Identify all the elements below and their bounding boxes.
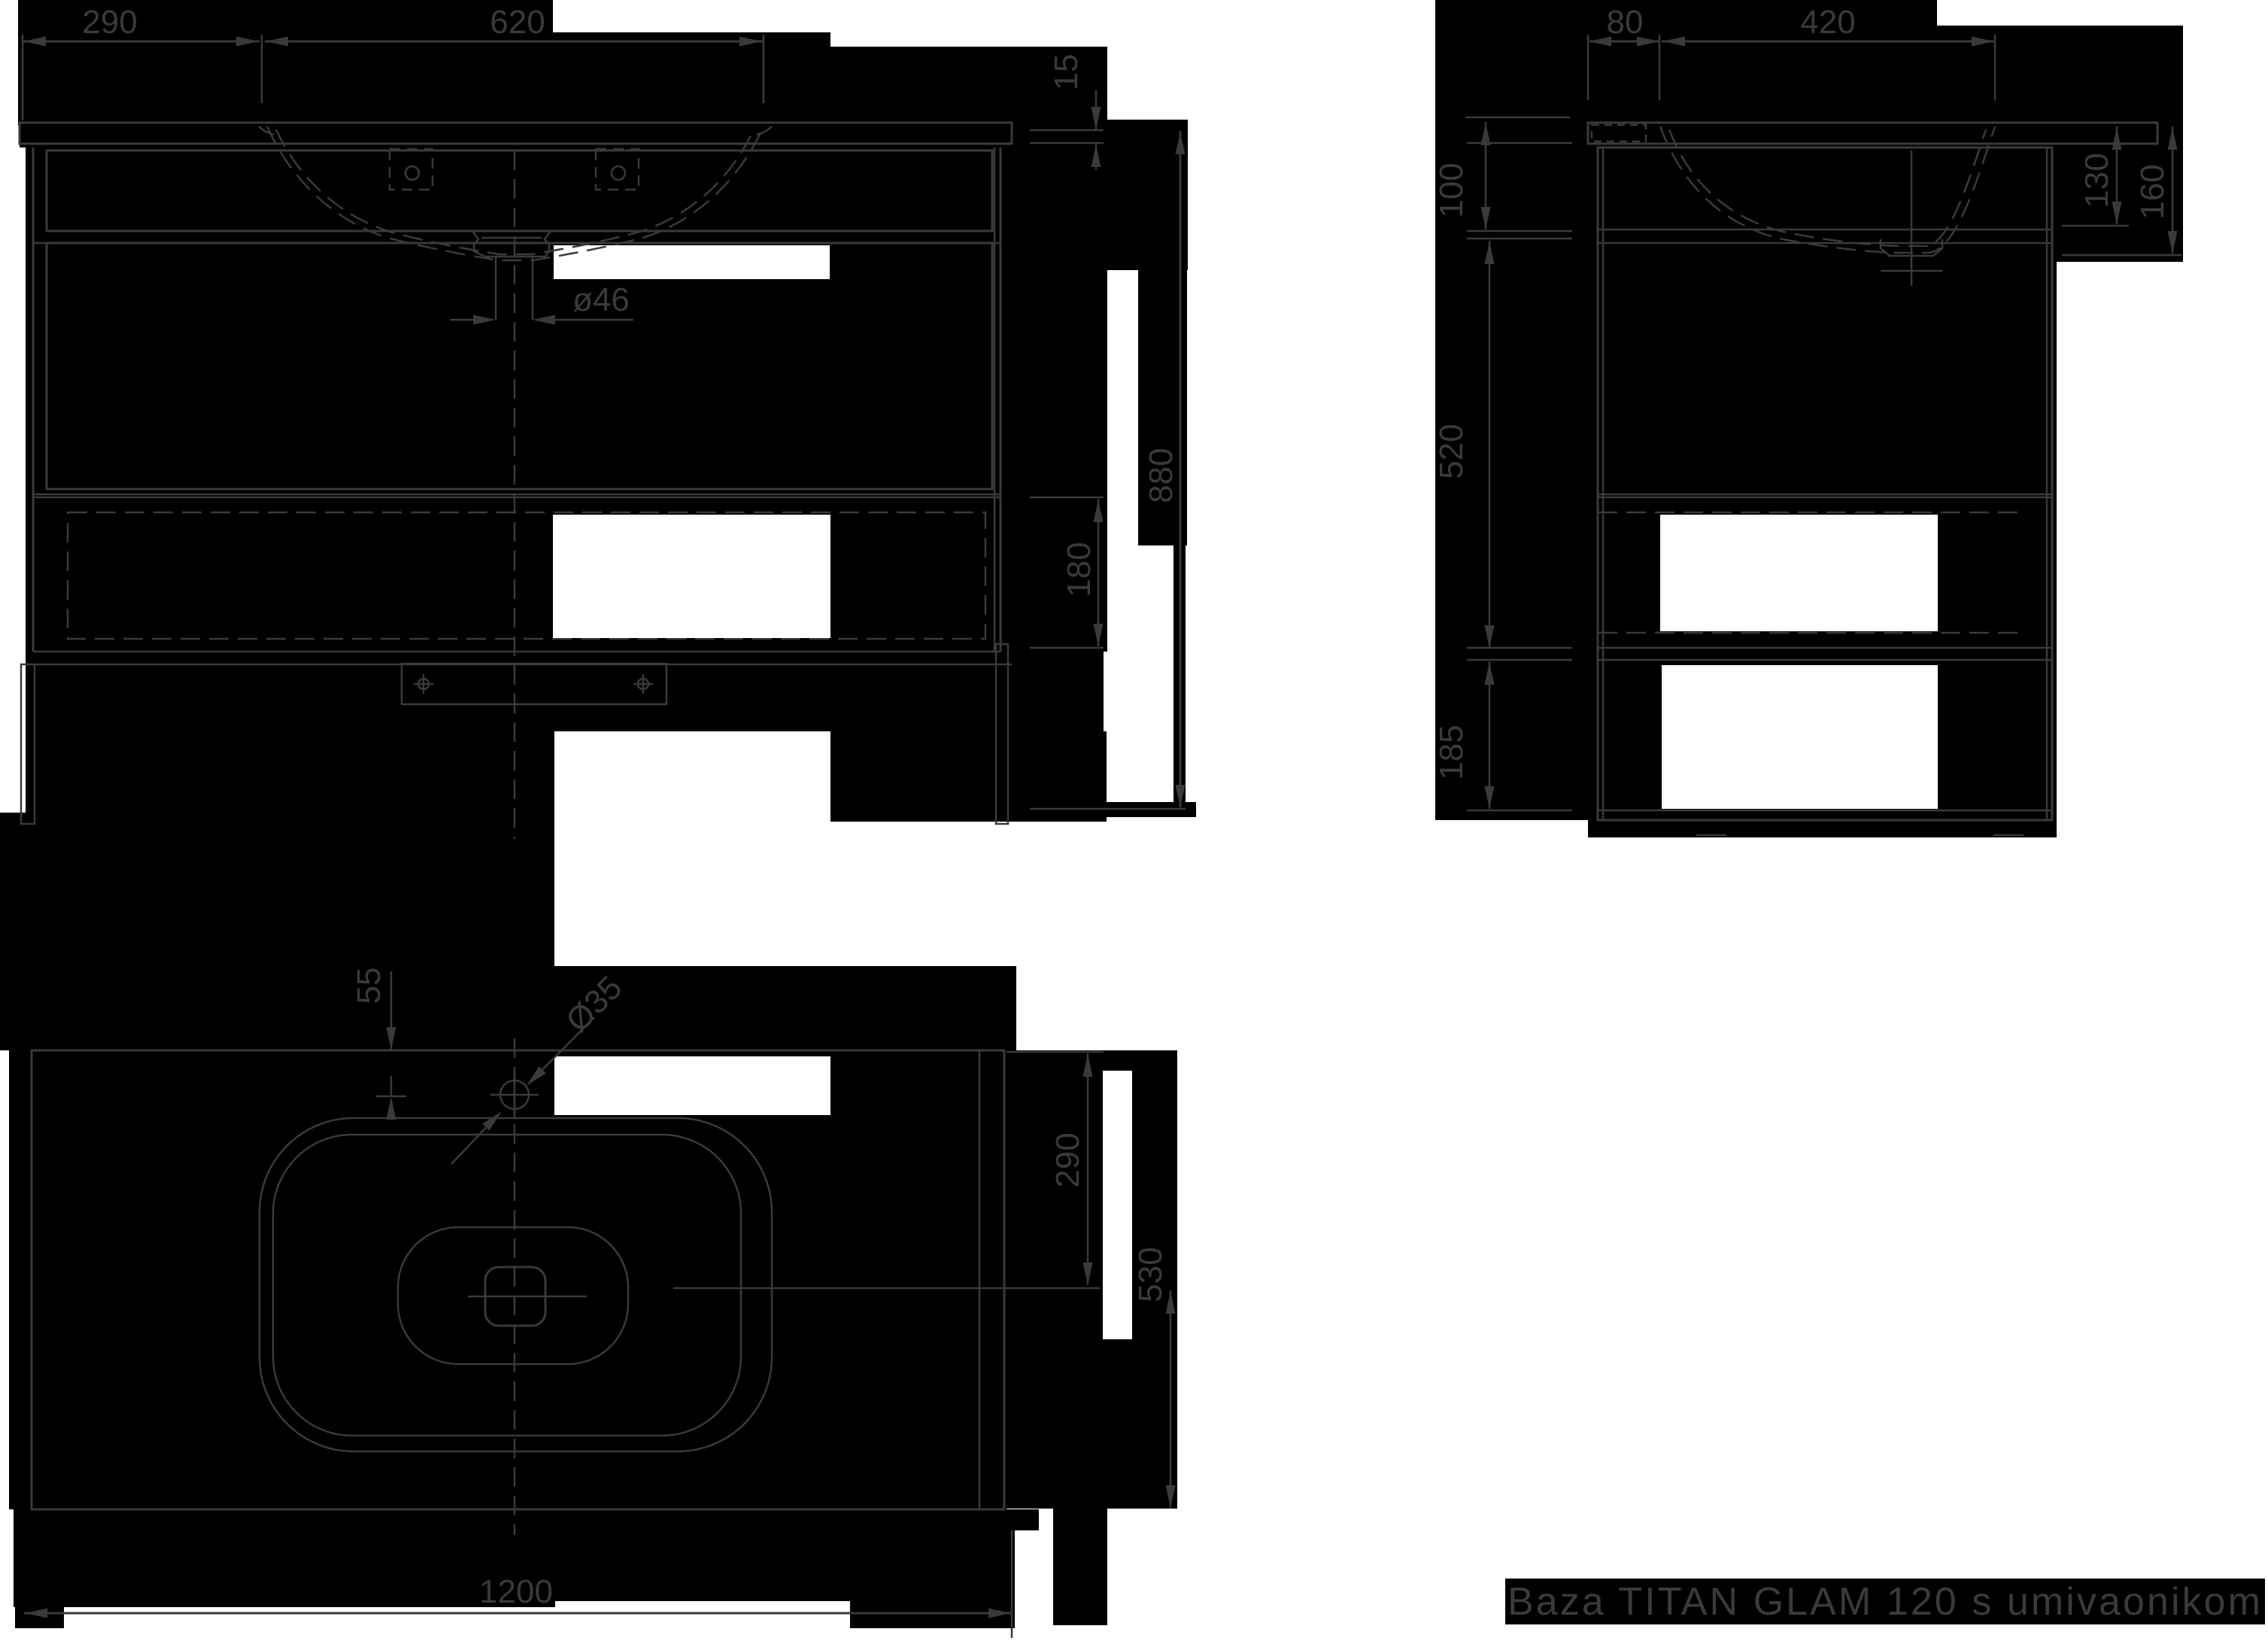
svg-text:185: 185 <box>1433 725 1470 779</box>
svg-text:15: 15 <box>1048 54 1085 91</box>
svg-text:880: 880 <box>1143 448 1180 503</box>
svg-text:420: 420 <box>1800 4 1855 41</box>
svg-text:ø46: ø46 <box>572 281 630 318</box>
svg-text:55: 55 <box>351 968 387 1004</box>
svg-text:520: 520 <box>1433 424 1470 479</box>
svg-text:180: 180 <box>1061 542 1098 597</box>
svg-text:290: 290 <box>82 4 137 41</box>
svg-text:1200: 1200 <box>479 1573 553 1610</box>
svg-text:160: 160 <box>2134 164 2171 219</box>
svg-text:530: 530 <box>1132 1247 1169 1302</box>
svg-text:620: 620 <box>490 4 545 41</box>
svg-text:Baza TITAN GLAM 120 s umivaoni: Baza TITAN GLAM 120 s umivaonikom <box>1507 1580 2260 1624</box>
svg-text:130: 130 <box>2078 153 2115 208</box>
svg-text:80: 80 <box>1607 4 1644 41</box>
svg-text:290: 290 <box>1049 1132 1086 1187</box>
svg-text:100: 100 <box>1433 163 1470 217</box>
